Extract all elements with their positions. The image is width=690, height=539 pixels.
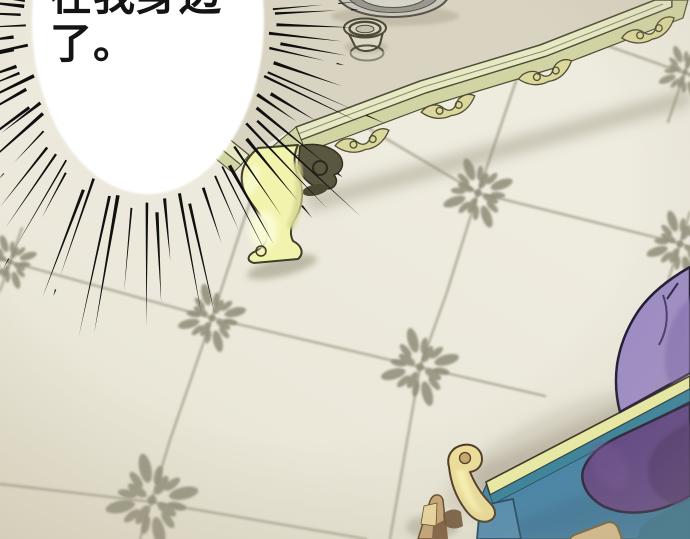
comic-panel: 在我身边 了。 <box>0 0 690 539</box>
panel-art <box>0 0 690 539</box>
bubble-text-line1: 在我身边 <box>50 0 222 20</box>
bubble-text-line2: 了。 <box>50 20 222 68</box>
speech-bubble-text: 在我身边 了。 <box>50 0 222 68</box>
